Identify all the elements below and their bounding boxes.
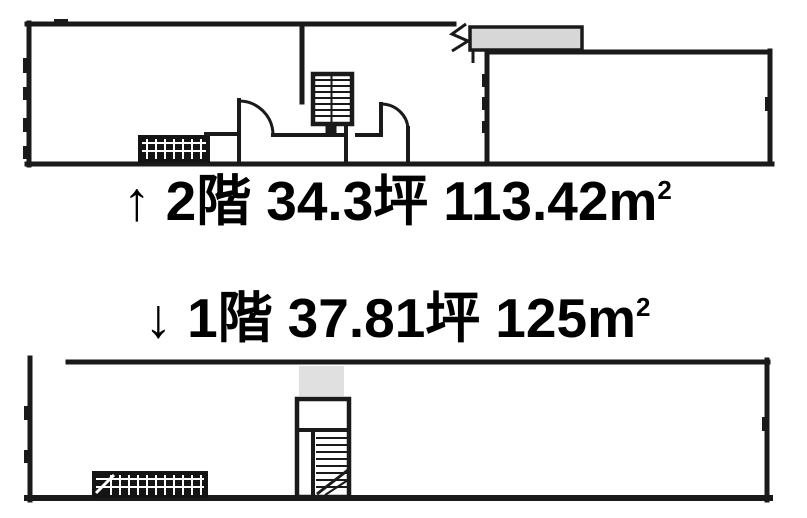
floor-2-tsubo: 34.3坪 [266, 174, 428, 229]
2f-staircase [313, 74, 352, 134]
floor-2-label: ↑ 2階 34.3坪 113.42m2 [0, 174, 801, 229]
up-arrow-icon: ↑ [123, 174, 151, 229]
floor-1-area: 125m2 [495, 291, 650, 346]
floor-2-area: 113.42m2 [443, 174, 672, 229]
floor-1-label: ↓ 1階 37.81坪 125m2 [0, 291, 801, 346]
2f-door-right [357, 104, 408, 164]
floor-2-name: 2階 [166, 174, 252, 229]
floor-1-plan [26, 358, 770, 500]
1f-shutter-hatch [92, 471, 208, 498]
1f-window-ticks [26, 408, 764, 461]
2f-window-ticks [25, 21, 767, 157]
squared-exponent: 2 [636, 294, 650, 320]
floor-1-name: 1階 [187, 291, 273, 346]
floor-1-tsubo: 37.81坪 [288, 291, 481, 346]
down-arrow-icon: ↓ [145, 291, 173, 346]
floor-2-plan [25, 21, 772, 165]
1f-stair-landing [299, 366, 344, 396]
floor-plans-drawing [0, 0, 807, 518]
1f-staircase [297, 399, 349, 497]
2f-shutter-hatch [138, 135, 210, 163]
2f-canopy [470, 27, 582, 50]
squared-exponent: 2 [657, 177, 671, 203]
floorplan-page: ↑ 2階 34.3坪 113.42m2 ↓ 1階 37.81坪 125m2 [0, 0, 807, 518]
